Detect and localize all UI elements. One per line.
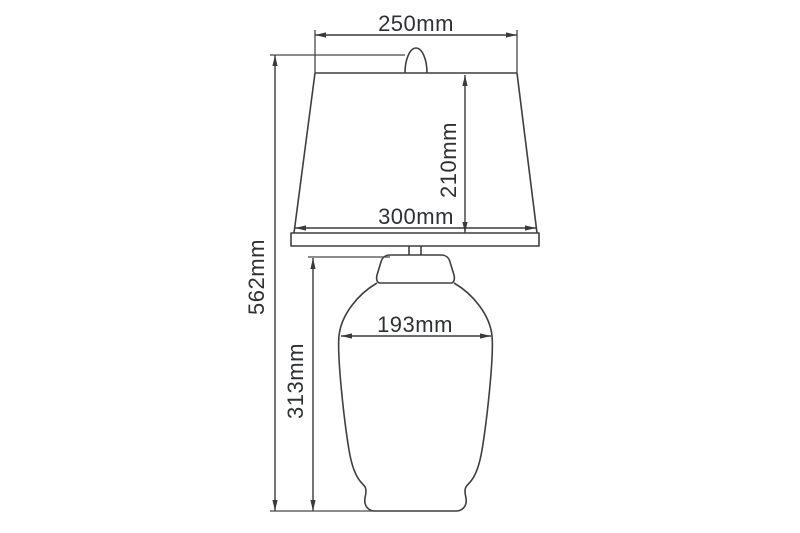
dimension-body-height: 313mm (283, 258, 313, 511)
shade-rim-band (291, 233, 539, 246)
shade-left-side (294, 73, 315, 233)
dimension-overall-height: 562mm (244, 55, 275, 511)
lamp-neck (409, 246, 421, 255)
lamp-base (339, 255, 493, 511)
finial-arc-icon (405, 48, 427, 73)
dimension-shade-bottom-width: 300mm (295, 204, 536, 229)
base-cap (377, 255, 455, 283)
dimension-body-width: 193mm (341, 312, 491, 337)
extension-lines (270, 30, 517, 511)
label-shade-height: 210mm (436, 122, 461, 198)
label-shade-bottom-width: 300mm (378, 204, 454, 229)
label-shade-top-width: 250mm (378, 11, 454, 36)
shade-right-side (517, 73, 537, 233)
label-body-height: 313mm (283, 343, 308, 419)
label-overall-height: 562mm (244, 239, 269, 315)
lamp-dimension-diagram: 250mm 562mm 210mm 300mm 193mm 313mm (0, 0, 800, 533)
dimension-shade-top-width: 250mm (315, 11, 517, 36)
label-body-width: 193mm (377, 312, 453, 337)
technical-drawing-page: 250mm 562mm 210mm 300mm 193mm 313mm (0, 0, 800, 533)
